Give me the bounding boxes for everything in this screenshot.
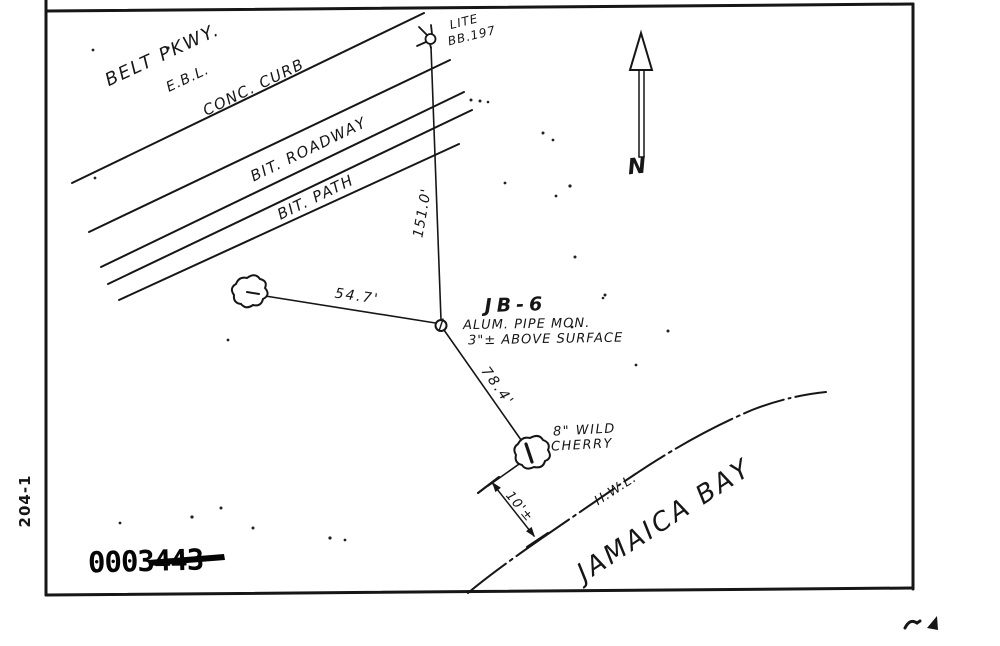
- survey-line-151: [431, 47, 441, 320]
- tree-symbol: [232, 275, 268, 307]
- street-light-icon: [417, 25, 436, 48]
- monument-desc-line2: 3"± ABOVE SURFACE: [468, 332, 623, 348]
- north-arrow-icon: [630, 33, 652, 157]
- north-letter: N: [627, 155, 648, 180]
- hwl-shoreline: [468, 392, 826, 593]
- cropped-page-mark: [905, 616, 938, 630]
- cherry-tree-icon: [514, 436, 550, 469]
- cherry-label-line2: CHERRY: [551, 437, 614, 454]
- ink-specks: [92, 46, 670, 541]
- monument-desc-line1: ALUM. PIPE MON.: [463, 317, 591, 333]
- monument-icon: [436, 319, 447, 331]
- stamp-number: 0003443: [88, 542, 204, 579]
- station-id: JB-6: [484, 295, 547, 317]
- survey-sketch-page: BELT PKWY. E.B.L. CONC. CURB BIT. ROADWA…: [0, 0, 1000, 646]
- margin-code: 204-1: [16, 475, 34, 528]
